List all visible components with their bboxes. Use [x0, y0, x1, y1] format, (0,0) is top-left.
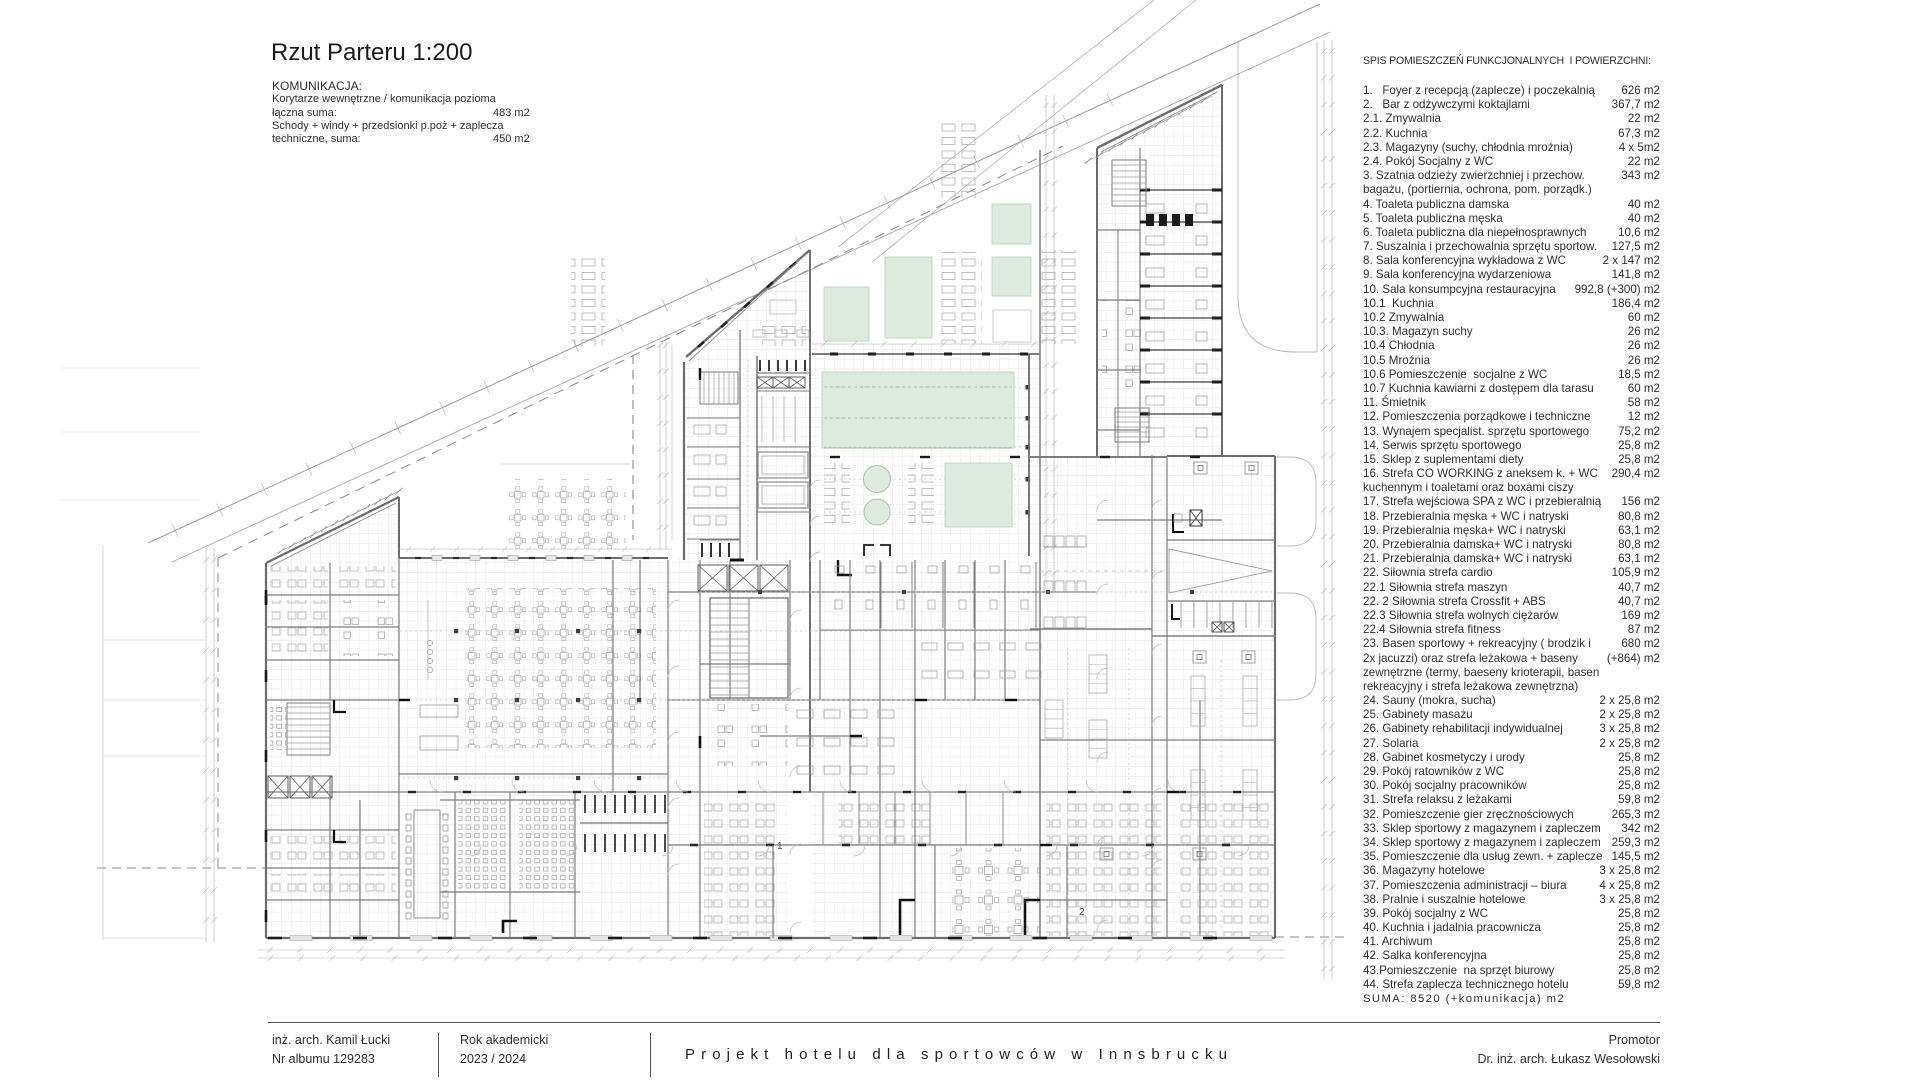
- svg-text:1: 1: [777, 841, 783, 852]
- svg-text:2: 2: [1079, 907, 1085, 918]
